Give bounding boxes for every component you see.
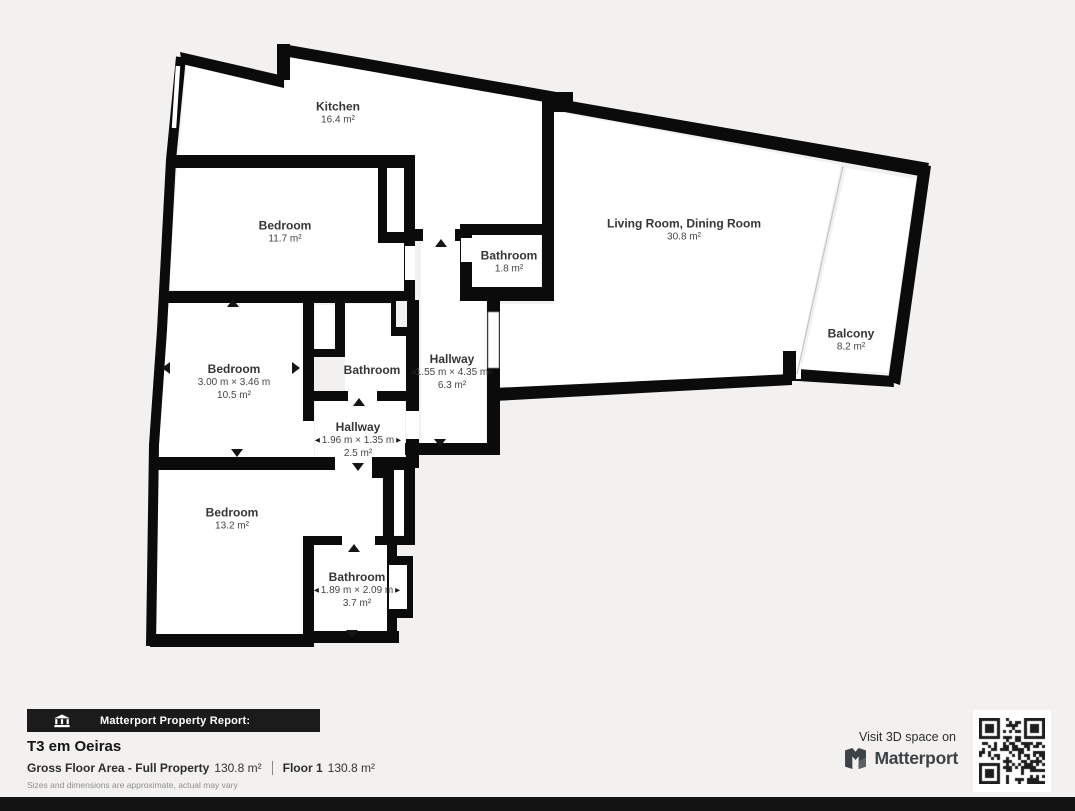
- qr-code: [973, 710, 1051, 792]
- divider: [272, 761, 273, 775]
- bathroom-bay-window: [389, 565, 407, 609]
- shaft-floor: [394, 469, 404, 535]
- duct-floor: [315, 305, 335, 349]
- bedroom-mid-floor: [158, 302, 303, 457]
- gfa-label: Gross Floor Area - Full Property: [27, 761, 209, 775]
- floor-plan: [0, 0, 1075, 700]
- bathroom-bottom-door: [342, 536, 375, 545]
- building-icon: [54, 714, 70, 728]
- floor-value: 130.8 m²: [328, 761, 375, 775]
- matterport-logo-text: Matterport: [874, 748, 958, 769]
- gross-floor-area-line: Gross Floor Area - Full Property 130.8 m…: [27, 761, 375, 775]
- matterport-logo-icon: [844, 747, 867, 770]
- floor-label: Floor 1: [283, 761, 323, 775]
- bedroom-top-door: [405, 246, 415, 280]
- bottom-black-bar: [0, 797, 1075, 811]
- bedroom-top-floor: [169, 168, 405, 290]
- qr-code-pattern: [979, 718, 1045, 784]
- visit-3d-text: Visit 3D space on: [859, 730, 956, 744]
- duct-notch: [396, 301, 407, 327]
- kitchen-hallway-door: [423, 229, 455, 241]
- bedroom-top-closet: [387, 168, 405, 232]
- bedroom-mid-door: [303, 421, 314, 457]
- bathroom-bottom-floor: [314, 545, 387, 632]
- report-header-bar: Matterport Property Report:: [27, 709, 320, 732]
- bathroom-top-door: [461, 238, 472, 262]
- bathroom-mid-door: [348, 391, 377, 401]
- matterport-logo: Matterport: [844, 747, 958, 770]
- disclaimer-text: Sizes and dimensions are approximate, ac…: [27, 780, 238, 790]
- property-title: T3 em Oeiras: [27, 738, 121, 755]
- hallway-living-window: [488, 312, 499, 368]
- gfa-value: 130.8 m²: [214, 761, 261, 775]
- hallway-hallway-door: [406, 411, 419, 439]
- bathroom-top-floor: [472, 235, 541, 288]
- report-label: Matterport Property Report:: [100, 715, 250, 727]
- hallway-small-floor: [315, 401, 405, 458]
